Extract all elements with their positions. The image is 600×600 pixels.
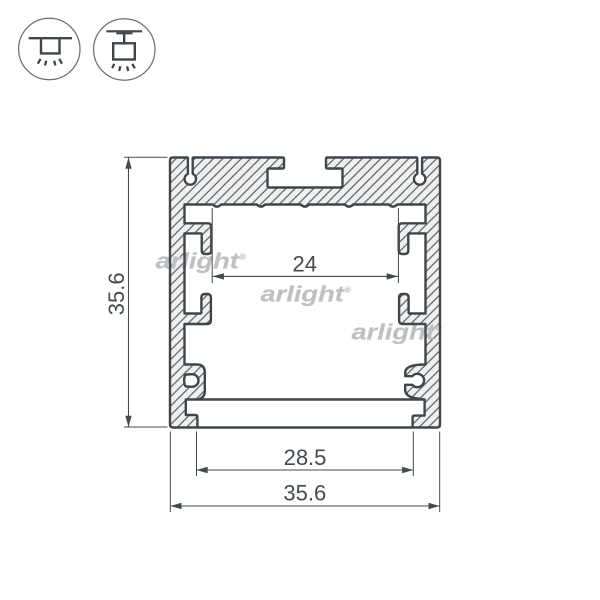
- svg-text:®: ®: [240, 252, 247, 262]
- svg-text:28.5: 28.5: [284, 445, 327, 470]
- svg-text:arlight: arlight: [156, 250, 241, 274]
- svg-text:35.6: 35.6: [283, 481, 326, 506]
- svg-text:35.6: 35.6: [104, 272, 129, 315]
- svg-text:®: ®: [345, 285, 352, 295]
- svg-text:arlight: arlight: [261, 283, 346, 307]
- svg-text:24: 24: [293, 251, 317, 276]
